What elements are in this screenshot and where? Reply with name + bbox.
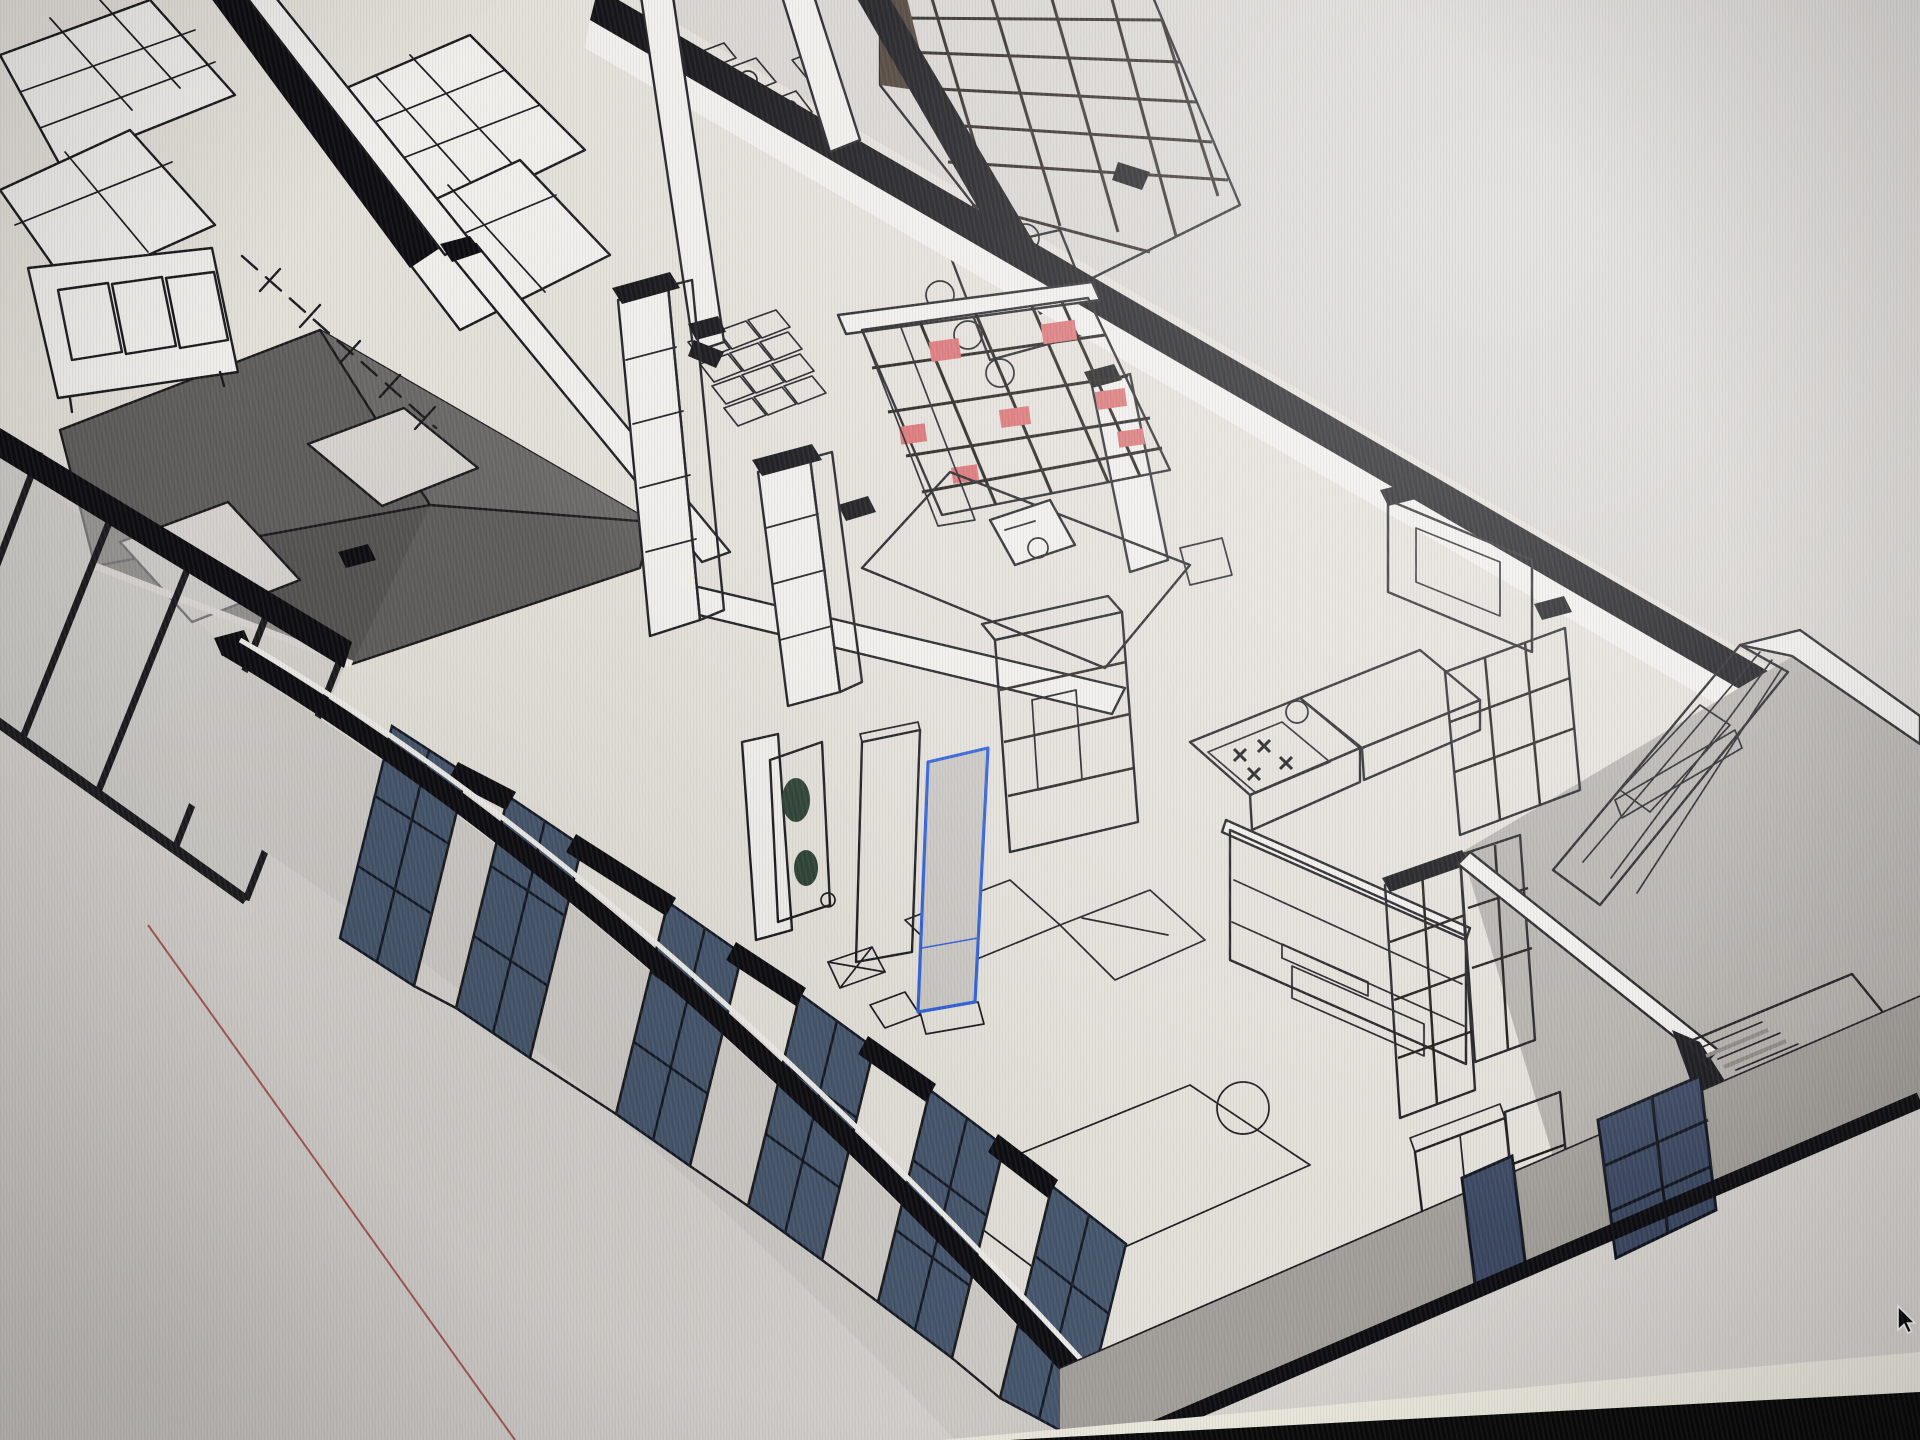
viewport-canvas[interactable] <box>0 0 1920 1440</box>
photographed-monitor <box>0 0 1920 1440</box>
